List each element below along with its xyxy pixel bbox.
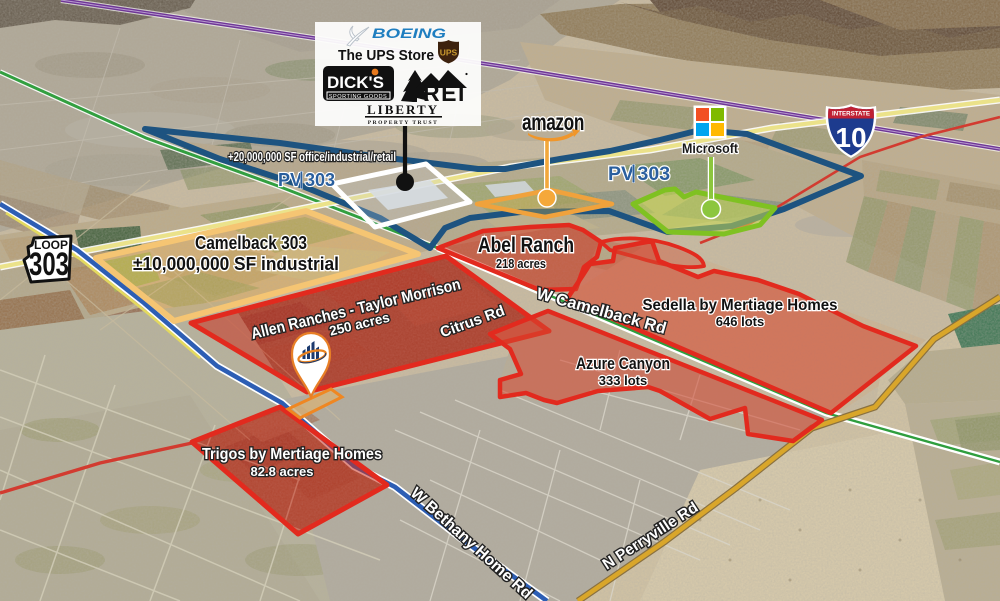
svg-text:UPS: UPS [440, 48, 458, 58]
svg-text:Microsoft: Microsoft [682, 140, 738, 156]
svg-text:Camelback 303: Camelback 303 [195, 233, 307, 253]
svg-text:The UPS Store: The UPS Store [338, 47, 434, 64]
svg-text:PV: PV [278, 170, 302, 190]
svg-text:218 acres: 218 acres [496, 256, 546, 271]
svg-text:Trigos by Mertiage Homes: Trigos by Mertiage Homes [202, 446, 382, 463]
svg-text:303: 303 [29, 246, 69, 282]
svg-text:INTERSTATE: INTERSTATE [832, 111, 870, 118]
svg-text:LIBERTY: LIBERTY [367, 102, 439, 117]
svg-text:10: 10 [835, 122, 866, 153]
svg-text:303: 303 [638, 163, 671, 185]
svg-text:Azure Canyon: Azure Canyon [576, 354, 670, 373]
svg-text:PROPERTY TRUST: PROPERTY TRUST [368, 120, 438, 126]
svg-text:SPORTING GOODS: SPORTING GOODS [329, 94, 388, 100]
svg-text:82.8 acres: 82.8 acres [251, 464, 314, 479]
svg-text:303: 303 [305, 170, 335, 190]
svg-text:+20,000,000 SF office/industri: +20,000,000 SF office/industrial/retail [228, 150, 396, 164]
svg-text:646 lots: 646 lots [716, 314, 764, 329]
svg-text:±10,000,000 SF industrial: ±10,000,000 SF industrial [133, 254, 339, 274]
svg-text:PV: PV [608, 163, 634, 185]
svg-text:Abel Ranch: Abel Ranch [478, 234, 574, 257]
svg-text:DICK'S: DICK'S [327, 73, 384, 92]
svg-text:BOEING: BOEING [372, 25, 446, 41]
svg-text:Sedella by Mertiage Homes: Sedella by Mertiage Homes [643, 297, 838, 314]
svg-text:333 lots: 333 lots [599, 373, 647, 388]
